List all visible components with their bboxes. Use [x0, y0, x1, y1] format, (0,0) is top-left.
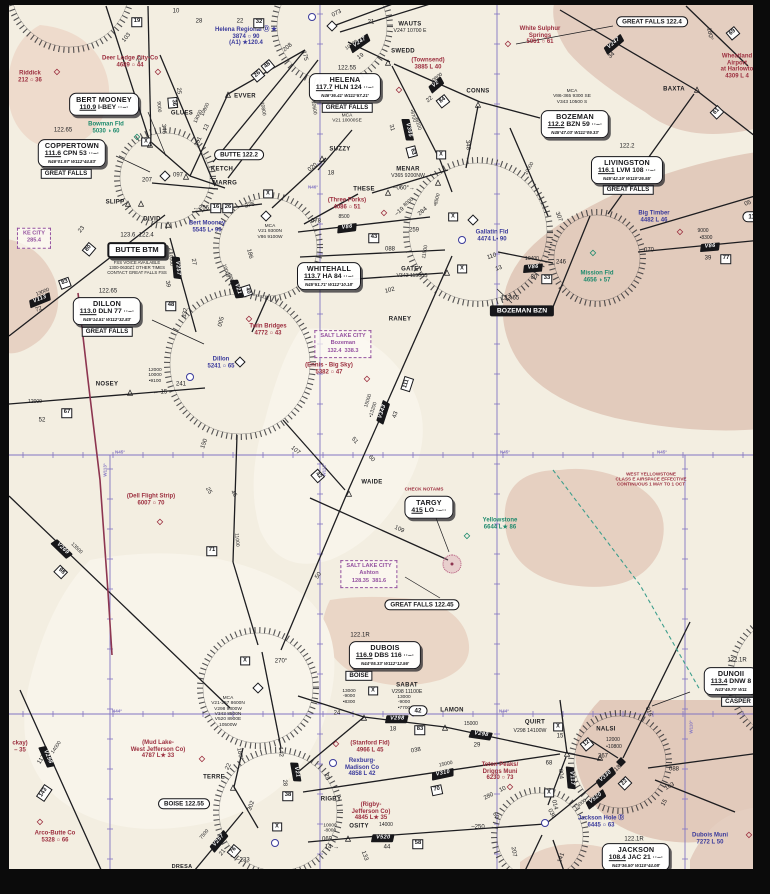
navaid-freq-ident: 110.9 I-BEY ··–· — [76, 104, 132, 112]
map-label: 28 — [196, 19, 203, 26]
mileage-box: 80 — [82, 242, 97, 257]
map-label: Big Timber 4482 L 46 — [638, 210, 669, 223]
map-label: V247 10700 E — [394, 29, 427, 35]
map-label: (Dell Flight Strip) 6007 ○ 70 — [127, 493, 175, 506]
map-label: (Ennis - Big Sky) 5382 ○ 47 — [305, 362, 353, 375]
vor-icon — [467, 214, 478, 225]
map-label: Jackson Hole Ⓓ 6445 ○ 63 — [578, 815, 624, 828]
airport-circle-icon — [186, 373, 194, 381]
airway-shield: V520 — [371, 834, 395, 842]
airway-shield: V269 — [51, 539, 74, 559]
navaid-freq-ident: 117.7 HLN 124 ··–· — [316, 85, 374, 93]
map-label: 14000 — [379, 823, 393, 829]
map-label: RANEY — [389, 317, 412, 324]
map-label: CHECK NOTAMS — [405, 487, 444, 492]
fix-triangle-icon: △ — [147, 140, 153, 148]
airport-diamond-icon: ◇ — [134, 133, 140, 141]
airport-diamond-icon: ◇ — [199, 755, 205, 763]
map-label: 004 — [556, 769, 564, 780]
map-label: N45° — [657, 449, 667, 454]
navaid-box: LIVINGSTON116.1 LVM 108 ··–·N45°42.19' W… — [591, 156, 663, 184]
map-label: 180° — [235, 747, 244, 760]
map-label: 24 — [334, 711, 341, 718]
fix-triangle-icon: △ — [165, 220, 171, 228]
fss-bracket: CASPER — [721, 697, 755, 707]
map-label: 11000 — [233, 533, 240, 547]
map-label: 275 — [244, 202, 255, 211]
airport-circle-icon — [458, 236, 466, 244]
map-label: RIGBY — [321, 797, 342, 804]
map-label: 23 — [77, 225, 86, 234]
map-label: 60 — [490, 811, 499, 820]
mileage-box: 71 — [206, 546, 217, 556]
map-label: 208 — [282, 42, 294, 54]
fix-triangle-icon: △ — [225, 90, 231, 98]
navaid-name: DUNOII — [711, 670, 751, 678]
map-label: 44 — [384, 845, 391, 852]
airway-shield: V117 — [566, 766, 576, 789]
map-label: 102 — [384, 286, 395, 295]
map-label: –060°→ — [393, 186, 415, 193]
map-label: 122.1R — [727, 658, 746, 665]
ndb-icon — [443, 555, 462, 574]
map-label: N46° — [308, 184, 318, 189]
fss-bracket: GREAT FALLS — [603, 185, 654, 195]
mileage-box: 19 — [131, 17, 142, 27]
map-label: 10400 — [525, 257, 539, 263]
airway-shield: V520 — [585, 789, 606, 810]
navaid-freq-ident: 113.7 HA 84 ··–· — [304, 274, 354, 282]
map-label: 122.65 — [54, 128, 72, 135]
mileage-box: 22 — [618, 776, 633, 791]
mileage-box: 69 — [726, 26, 741, 41]
airway-shield: V86 — [523, 263, 543, 272]
map-label: (Three Forks) 4086 ○ 51 — [328, 197, 366, 210]
airport-diamond-icon: ◇ — [505, 40, 511, 48]
frame-top — [0, 0, 770, 5]
frame-right — [753, 0, 770, 894]
map-label: KETCH — [211, 167, 233, 174]
map-label: 11500 — [422, 245, 430, 259]
map-label: 122.55 — [338, 66, 356, 73]
mileage-box: 67 — [61, 408, 72, 418]
airway-shield: V86 — [337, 223, 357, 233]
map-label: 207 — [142, 178, 152, 185]
map-label: 29 — [474, 743, 481, 750]
navaid-box: DUBOIS116.9 DBS 116 ··–·N44°05.33' W112°… — [349, 641, 421, 669]
fss-comm-box: BUTTE BTM — [107, 242, 166, 258]
map-label: 52 — [39, 418, 46, 425]
map-label: 307 — [553, 211, 563, 223]
navaid-freq-ident: 116.9 DBS 116 ··–· — [356, 653, 414, 661]
map-label: EVVER — [234, 94, 256, 101]
map-label: 31 — [387, 124, 395, 132]
map-label: Wheatland Airport at Harlowto 4309 L 4 — [721, 54, 754, 81]
map-label: 109 — [393, 525, 405, 535]
airway-shield: V86 — [700, 242, 720, 251]
mileage-box: 26 — [222, 203, 233, 213]
map-label: 18 — [390, 727, 397, 734]
map-label: ←256 — [193, 206, 209, 213]
map-label: 122.1R — [350, 633, 369, 640]
map-label: 038 — [410, 747, 421, 755]
mileage-box: 84 — [436, 94, 451, 109]
fss-bracket: BOISE — [345, 671, 372, 681]
airport-diamond-icon: ◇ — [677, 228, 683, 236]
frame-left — [0, 0, 9, 894]
navaid-name: WHITEHALL — [304, 265, 354, 273]
map-label: 175 — [299, 50, 308, 61]
airport-diamond-icon: ◇ — [157, 518, 163, 526]
mileage-box: 36 — [168, 97, 178, 109]
mileage-box: 70 — [430, 784, 443, 796]
map-label: 246 — [556, 260, 566, 267]
map-label: 12000 10000 •9100 — [148, 368, 161, 384]
fix-triangle-icon: △ — [345, 834, 351, 842]
frame-bottom — [0, 869, 770, 894]
remote-comm-box: SALT LAKE CITY Bozeman 132.4 338.3 — [314, 330, 371, 358]
fix-triangle-icon: △ — [127, 388, 133, 396]
map-label: Teton Peaks/ Driggs Muni 6230 ○ 73 — [482, 762, 519, 782]
map-label: WEST YELLOWSTONE CLASS E AIRSPACE EFFECT… — [616, 471, 687, 486]
map-label: LAMON — [440, 708, 464, 715]
mileage-box: 143 — [36, 784, 52, 801]
map-label: CONNS — [466, 89, 489, 96]
map-label: MARRG — [213, 181, 237, 188]
map-label: 207 — [509, 846, 517, 857]
mileage-box: 63 — [406, 145, 418, 159]
airport-diamond-icon: ◇ — [246, 315, 252, 323]
map-label: –233 — [236, 858, 249, 865]
map-label: ckay) – 35 — [12, 740, 27, 753]
mileage-box: 16 — [210, 203, 221, 213]
map-label: OSITY — [349, 824, 369, 831]
navaid-coordinates: N44°05.33' W112°12.56' — [356, 661, 414, 666]
map-label: Mission Fld 4656 ◑ 57 — [581, 270, 614, 283]
map-label: Riddick 212 ○ 36 — [18, 70, 42, 83]
airway-shield: V257 — [209, 829, 228, 852]
mileage-box: 61 — [710, 105, 725, 120]
map-label: 39 — [163, 280, 171, 288]
map-label: 18 — [328, 171, 335, 178]
map-label: 39 — [705, 256, 712, 263]
navaid-coordinates: N45°42.19' W110°26.55' — [598, 176, 656, 181]
navaid-freq-ident: 111.6 CPN 53 ··–· — [45, 151, 99, 159]
map-label: 13000 -9000 •8300 — [342, 689, 355, 705]
map-label: 088 — [669, 767, 679, 774]
map-label: 103 — [121, 32, 132, 44]
map-label: 020 — [307, 162, 319, 173]
navaid-coordinates: N46°01.97' W112°44.83' — [45, 159, 99, 164]
map-label: Rexburg- Madison Co 4858 L 42 — [345, 758, 379, 778]
map-label: 15 — [660, 798, 669, 807]
map-label: •8300 — [700, 236, 713, 242]
fix-triangle-icon: △ — [319, 154, 325, 162]
fix-triangle-icon: △ — [694, 85, 700, 93]
navaid-coordinates: N46°36.41' W111°57.21' — [316, 93, 374, 98]
x-mca-box: X — [240, 656, 250, 665]
map-label: GLUES — [171, 111, 193, 118]
map-label: 13 — [203, 124, 212, 133]
x-mca-box: X — [448, 212, 458, 221]
map-label: 069→ — [322, 837, 338, 844]
map-label: 10600 — [309, 101, 317, 116]
map-label: FSS VOICE AVAILABLE 1300-0630Z‡ OTHER TI… — [107, 261, 167, 275]
map-label: Yellowstone 6644 L★ 86 — [483, 517, 518, 530]
fix-triangle-icon: △ — [597, 753, 603, 761]
navaid-coordinates: N43°36.50' W110°44.08' — [609, 863, 663, 868]
map-label: 9000 — [697, 229, 708, 235]
airway-shield: V298 — [385, 715, 409, 723]
vor-icon — [260, 210, 271, 221]
navaid-box: TARGY415 LO ·–·· — [404, 496, 453, 519]
fss-bracket: GREAT FALLS — [41, 169, 92, 179]
freq-oval: GREAT FALLS 122.45 — [384, 599, 459, 610]
map-label: 15000 — [464, 722, 478, 728]
airport-circle-icon — [541, 819, 549, 827]
mileage-box: 33 — [541, 274, 552, 284]
map-label: 133 — [359, 850, 369, 862]
map-label: Deer Lodge City-Co 4689 ○ 44 — [102, 55, 158, 68]
airway-shield: V247 — [349, 33, 370, 53]
map-label: 005 — [217, 316, 226, 327]
navaid-freq-ident: 116.1 LVM 108 ··–· — [598, 168, 656, 176]
map-label: 110 — [486, 252, 497, 262]
map-label: 22 — [237, 19, 244, 26]
navaid-freq-ident: 415 LO ·–·· — [411, 507, 446, 515]
airport-diamond-icon: ◇ — [464, 532, 470, 540]
fix-triangle-icon: △ — [346, 489, 352, 497]
airport-diamond-icon: ◇ — [333, 740, 339, 748]
fix-triangle-icon: △ — [385, 188, 391, 196]
vor-icon — [326, 20, 337, 31]
map-label: White Sulphur Springs 5061 ○ 61 — [520, 26, 561, 46]
map-label: 270° — [275, 659, 287, 666]
map-label: WAIDE — [361, 480, 382, 487]
mileage-box: 83 — [414, 725, 425, 735]
map-label: 10 — [173, 9, 180, 16]
mileage-box: 58 — [412, 839, 423, 849]
map-label: TERRE — [203, 775, 225, 782]
map-label: 151 — [194, 136, 204, 148]
navaid-name: COPPERTOWN — [45, 142, 99, 150]
map-label: N44° — [499, 708, 509, 713]
map-label: MCA V21-257 8600N V298 9800W V343 8500N … — [211, 696, 245, 728]
map-label: 10000 -8000 — [323, 824, 336, 835]
mileage-box: 48 — [165, 301, 176, 311]
map-label: 10000 — [524, 162, 536, 177]
fix-triangle-icon: △ — [183, 172, 189, 180]
map-label: Dillon 5241 ○ 65 — [208, 356, 235, 369]
map-label: 180° — [705, 27, 714, 40]
navaid-coordinates: N45°14.51' W112°32.83' — [80, 317, 134, 322]
navaid-name: BERT MOONEY — [76, 96, 132, 104]
x-mca-box: X — [368, 686, 378, 695]
map-label: (Townsend) 3885 L 40 — [411, 57, 444, 70]
vor-icon — [234, 356, 245, 367]
airport-circle-icon — [329, 759, 337, 767]
airport-diamond-icon: ◇ — [381, 209, 387, 217]
rco-pill: BOZEMAN BZN — [490, 305, 554, 316]
airport-circle-icon — [271, 839, 279, 847]
map-label: 50 — [314, 571, 323, 580]
navaid-box: BERT MOONEY110.9 I-BEY ··–· — [69, 93, 139, 116]
x-mca-box: X — [436, 150, 446, 159]
airway-shield: V310 — [432, 768, 454, 780]
freq-oval: BOISE 122.55 — [158, 798, 210, 809]
map-label: 284 — [417, 206, 429, 218]
navaid-box: BOZEMAN112.2 BZN 59 ··–·N45°47.03' W111°… — [541, 110, 609, 138]
map-label: MCA V21 9300N V86 9100W — [257, 224, 282, 240]
x-mca-box: X — [272, 822, 282, 831]
airport-diamond-icon: ◇ — [54, 68, 60, 76]
fss-bracket: GREAT FALLS — [322, 103, 373, 113]
fix-triangle-icon: △ — [385, 58, 391, 66]
navaid-name: JACKSON — [609, 846, 663, 854]
x-mca-box: X — [553, 722, 563, 731]
airway-shield: V257 — [172, 256, 182, 279]
airway-shield: V247 — [604, 33, 625, 54]
fix-triangle-icon: △ — [138, 199, 144, 207]
airway-shield: V330 — [596, 766, 617, 788]
map-label: Bowman Fld 5030 ◑ 60 — [88, 121, 124, 134]
mileage-box: 111 — [400, 376, 413, 392]
remote-comm-box: SALT LAKE CITY Ashton 128.35 381.6 — [340, 560, 397, 588]
navaid-freq-ident: 113.0 DLN 77 ··–· — [80, 309, 134, 317]
map-label: 28 — [280, 779, 287, 786]
navaid-box: WHITEHALL113.7 HA 84 ··–·N45°51.71' W112… — [297, 262, 361, 290]
map-label: 22 — [225, 763, 234, 772]
map-label: Arco-Butte Co 5328 ○ 66 — [35, 830, 76, 843]
map-label: 05 — [744, 200, 753, 209]
map-label: 103 — [664, 782, 676, 793]
chart-overlay: 10282210322Helena Regional Ⓓ ★ 3874 ○ 90… — [0, 0, 770, 894]
map-label: 21 — [368, 20, 375, 27]
airport-circle-icon — [308, 13, 316, 21]
map-label: 073 — [331, 9, 343, 20]
map-label: 43 — [392, 411, 400, 419]
navaid-name: TARGY — [411, 499, 446, 507]
map-label: BAXTA — [663, 87, 685, 94]
airport-diamond-icon: ◇ — [590, 249, 596, 257]
map-label: 7500 — [199, 829, 210, 841]
map-label: 8500 — [338, 215, 349, 221]
airport-diamond-icon: ◇ — [155, 68, 161, 76]
map-label: 12000 — [606, 738, 620, 744]
fss-bracket: GREAT FALLS — [82, 327, 133, 337]
map-label: Bert Mooney 5545 L• 90 — [189, 220, 225, 233]
map-label: 22 — [425, 95, 434, 104]
map-label: 15 — [557, 734, 564, 741]
freq-oval: 42 — [409, 705, 428, 716]
navaid-box: JACKSON108.4 JAC 21 ··–·N43°36.50' W110°… — [602, 843, 670, 871]
map-label: N45° — [500, 449, 510, 454]
mileage-box: 38 — [282, 791, 293, 801]
airport-diamond-icon: ◇ — [364, 375, 370, 383]
map-label: MCA V21 10000SE — [332, 114, 362, 125]
map-label: 46 — [228, 489, 237, 498]
navaid-coordinates: N45°51.71' W112°10.18' — [304, 282, 354, 287]
freq-oval: BUTTE 122.2 — [214, 149, 264, 160]
map-label: NOSEY — [96, 382, 119, 389]
vor-icon — [159, 170, 170, 181]
map-label: 088 — [385, 247, 395, 254]
navaid-name: LIVINGSTON — [598, 159, 656, 167]
ifr-enroute-chart: 10282210322Helena Regional Ⓓ ★ 3874 ○ 90… — [0, 0, 770, 894]
airport-diamond-icon: ◇ — [37, 818, 43, 826]
map-label: V343 11500S — [396, 274, 427, 280]
navaid-box: DILLON113.0 DLN 77 ··–·N45°14.51' W112°3… — [73, 297, 141, 325]
map-label: 122.65 — [99, 289, 117, 296]
map-label: 107 — [289, 445, 301, 457]
map-label: 346 — [159, 124, 167, 135]
map-label: 14000 — [51, 741, 63, 756]
remote-comm-box: KE CITY 285.4 — [17, 228, 51, 249]
mileage-box: 77 — [720, 254, 731, 264]
fix-triangle-icon: △ — [361, 713, 367, 721]
map-label: N44° — [112, 708, 122, 713]
map-label: 68 — [546, 761, 553, 768]
map-label: W110° — [688, 720, 693, 733]
navaid-coordinates: N45°47.03' W111°09.33' — [548, 130, 602, 135]
navaid-box: COPPERTOWN111.6 CPN 53 ··–·N46°01.97' W1… — [38, 139, 106, 167]
map-label: 25 — [322, 773, 330, 781]
map-label: (Rigby- Jefferson Co) 4845 L★ 35 — [352, 802, 391, 822]
navaid-name: BOZEMAN — [548, 113, 602, 121]
map-label: 070 — [644, 248, 654, 255]
map-label: 10800 — [201, 103, 212, 118]
mileage-box: 12 — [580, 737, 595, 752]
mileage-box: 43 — [368, 233, 379, 243]
map-label: 150 — [200, 438, 210, 450]
navaid-name: DUBOIS — [356, 644, 414, 652]
x-mca-box: X — [544, 788, 554, 797]
map-label: V298 14100W — [514, 729, 547, 735]
map-label: 21 — [218, 848, 227, 857]
map-label: THESE — [353, 187, 375, 194]
map-label: 13 — [495, 265, 504, 274]
navaid-freq-ident: 113.4 DNW 8 — [711, 679, 751, 687]
map-label: V365 9200NW — [391, 174, 425, 180]
x-mca-box: X — [263, 189, 273, 198]
map-label: (Stanford Fld) 4966 L 45 — [350, 740, 389, 753]
airway-shield: V298 — [469, 730, 494, 740]
map-label: 259 — [409, 228, 419, 235]
map-label: Helena Regional Ⓓ ★ 3874 ○ 90 (A1) ★120.… — [215, 27, 277, 47]
map-label: (Mud Lake- West Jefferson Co) 4787 L★ 33 — [131, 740, 186, 760]
mileage-box: 76 — [227, 844, 242, 859]
map-label: 12000 — [28, 400, 42, 406]
map-label: 14 → — [325, 845, 339, 852]
map-label: SUZZY — [329, 147, 350, 154]
map-label: 016 — [643, 706, 653, 718]
navaid-box: HELENA117.7 HLN 124 ··–·N46°36.41' W111°… — [309, 73, 381, 101]
map-label: ← 15 — [153, 390, 167, 397]
navaid-freq-ident: 112.2 BZN 59 ··–· — [548, 122, 602, 130]
map-label: W113° — [102, 463, 107, 476]
map-label: 097 — [173, 173, 183, 180]
map-label: 10800 — [258, 102, 266, 117]
freq-oval: GREAT FALLS 122.4 — [616, 16, 688, 27]
vor-icon — [252, 682, 263, 693]
fix-triangle-icon: △ — [125, 199, 131, 207]
map-label: 302 — [247, 800, 257, 812]
map-label: 25 — [203, 486, 212, 495]
fix-triangle-icon: △ — [475, 100, 481, 108]
navaid-name: DILLON — [80, 300, 134, 308]
fix-triangle-icon: △ — [444, 268, 450, 276]
map-label: 60 — [366, 454, 375, 463]
